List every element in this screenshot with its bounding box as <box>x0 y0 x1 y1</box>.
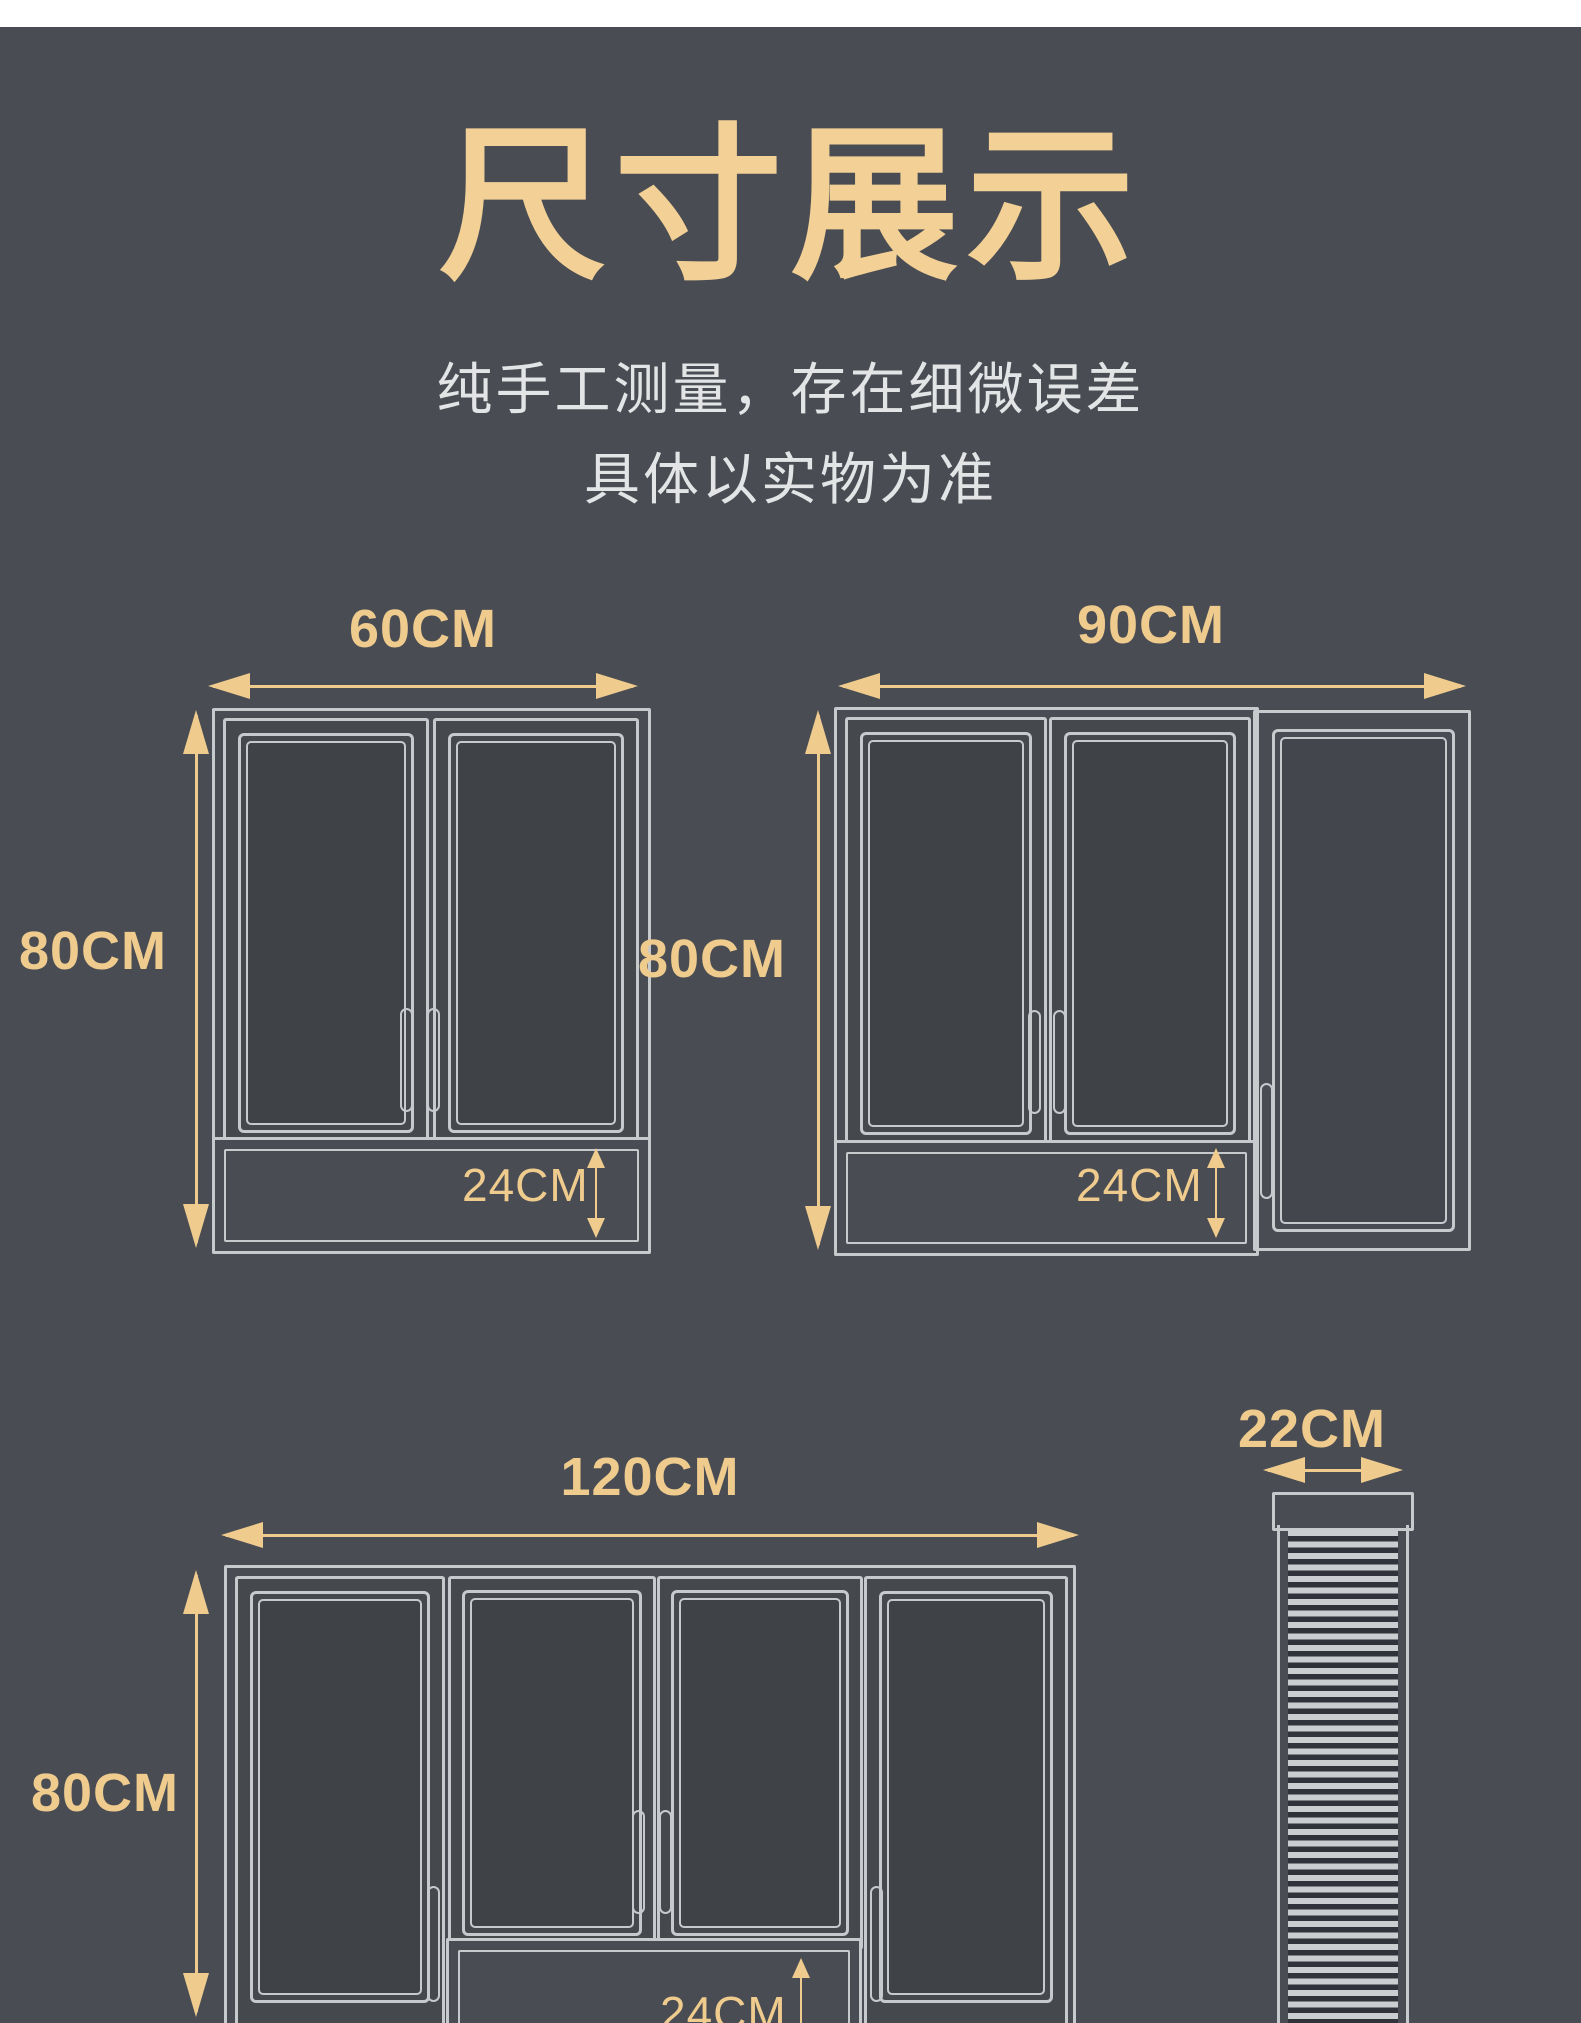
door-panel-inner <box>470 1598 634 1928</box>
cab22-width-arrow <box>1263 1456 1403 1484</box>
cab60-door-right <box>433 718 639 1148</box>
door-panel-inner <box>887 1599 1045 1995</box>
cab60-width-label: 60CM <box>273 602 573 656</box>
cab90-height-arrow <box>804 710 832 1250</box>
cab90-door-middle <box>1049 717 1251 1150</box>
cab120-drawer-arrow <box>792 1958 810 2023</box>
cab120-door-4 <box>864 1576 1068 2023</box>
cab120-body <box>224 1565 1076 2023</box>
door-panel-outer <box>462 1590 642 1936</box>
cab120-door-2 <box>448 1576 656 1950</box>
arrowhead-right-icon <box>1037 1522 1079 1548</box>
top-white-strip <box>0 0 1581 27</box>
cab90-tall-door-handle <box>1260 1083 1273 1199</box>
cab90-height-label: 80CM <box>632 932 792 986</box>
cab120-handle-door1 <box>427 1886 440 2002</box>
arrowhead-left-icon <box>221 1522 263 1548</box>
cab60-handle-right <box>427 1008 440 1112</box>
cab22-width-label: 22CM <box>1162 1402 1462 1456</box>
cab60-height-label: 80CM <box>13 924 173 978</box>
cab22-louver-slats <box>1288 1530 1398 2023</box>
arrow-line <box>817 715 820 1245</box>
cab90-drawer-arrow <box>1207 1148 1225 1238</box>
page-title: 尺寸展示 <box>0 118 1581 294</box>
arrowhead-left-icon <box>208 673 250 699</box>
cab90-tall-side-door <box>1253 710 1471 1251</box>
arrowhead-down-icon <box>183 1973 209 2017</box>
door-panel-outer <box>1064 732 1236 1135</box>
subtitle-line1: 纯手工测量，存在细微误差 <box>0 362 1581 418</box>
arrowhead-left-icon <box>838 673 880 699</box>
door-panel-inner <box>246 741 406 1125</box>
cab120-handle-door3 <box>659 1810 672 1914</box>
cab90-handle-middle <box>1053 1010 1066 1114</box>
door-panel-inner <box>258 1599 422 1995</box>
arrow-line <box>843 685 1461 688</box>
cab22-body <box>1277 1525 1409 2023</box>
cab90-width-arrow <box>838 672 1466 700</box>
arrowhead-right-icon <box>1424 673 1466 699</box>
cab120-door-1 <box>235 1576 445 2023</box>
arrowhead-down-icon <box>587 1218 605 1238</box>
door-panel-outer <box>250 1591 430 2003</box>
cab120-door-3 <box>657 1576 863 1950</box>
arrowhead-right-icon <box>1361 1457 1403 1483</box>
arrow-line <box>226 1534 1074 1537</box>
door-panel-inner <box>1072 740 1228 1127</box>
cab120-height-label: 80CM <box>25 1766 185 1820</box>
door-panel-outer <box>671 1590 849 1936</box>
arrowhead-down-icon <box>183 1204 209 1248</box>
cab120-height-arrow <box>182 1570 210 2017</box>
arrowhead-down-icon <box>1207 1218 1225 1238</box>
arrow-line <box>195 1575 198 2012</box>
cab120-handle-door4 <box>870 1886 883 2002</box>
cab60-door-left <box>223 718 429 1148</box>
cab120-width-label: 120CM <box>500 1450 800 1504</box>
cab120-drawer-label: 24CM <box>660 1990 784 2023</box>
cab90-width-label: 90CM <box>1001 598 1301 652</box>
arrowhead-up-icon <box>183 1570 209 1614</box>
door-panel-outer <box>860 732 1032 1135</box>
cab120-handle-door2 <box>632 1810 645 1914</box>
cab60-handle-left <box>400 1008 413 1112</box>
cab120-width-arrow <box>221 1521 1079 1549</box>
arrowhead-up-icon <box>587 1148 605 1168</box>
arrowhead-down-icon <box>805 1206 831 1250</box>
cab90-drawer-label: 24CM <box>1076 1162 1200 1208</box>
cab60-drawer-label: 24CM <box>462 1162 586 1208</box>
arrow-line <box>213 685 633 688</box>
door-panel-outer <box>448 733 624 1133</box>
arrowhead-up-icon <box>1207 1148 1225 1168</box>
arrow-line <box>195 715 198 1243</box>
cab90-handle-left <box>1028 1010 1041 1114</box>
arrowhead-up-icon <box>183 710 209 754</box>
arrowhead-right-icon <box>596 673 638 699</box>
door-panel-inner <box>1280 737 1447 1224</box>
cab60-width-arrow <box>208 672 638 700</box>
subtitle-line2: 具体以实物为准 <box>0 452 1581 508</box>
cab90-door-left <box>845 717 1047 1150</box>
arrowhead-up-icon <box>792 1958 810 1978</box>
arrowhead-up-icon <box>805 710 831 754</box>
door-panel-outer <box>1272 729 1455 1232</box>
cab60-height-arrow <box>182 710 210 1248</box>
door-panel-inner <box>456 741 616 1125</box>
size-display-diagram: 尺寸展示 纯手工测量，存在细微误差 具体以实物为准 60CM 80CM 24CM <box>0 0 1581 2023</box>
door-panel-outer <box>879 1591 1053 2003</box>
cab60-drawer-arrow <box>587 1148 605 1238</box>
door-panel-inner <box>679 1598 841 1928</box>
arrowhead-left-icon <box>1263 1457 1305 1483</box>
door-panel-inner <box>868 740 1024 1127</box>
door-panel-outer <box>238 733 414 1133</box>
